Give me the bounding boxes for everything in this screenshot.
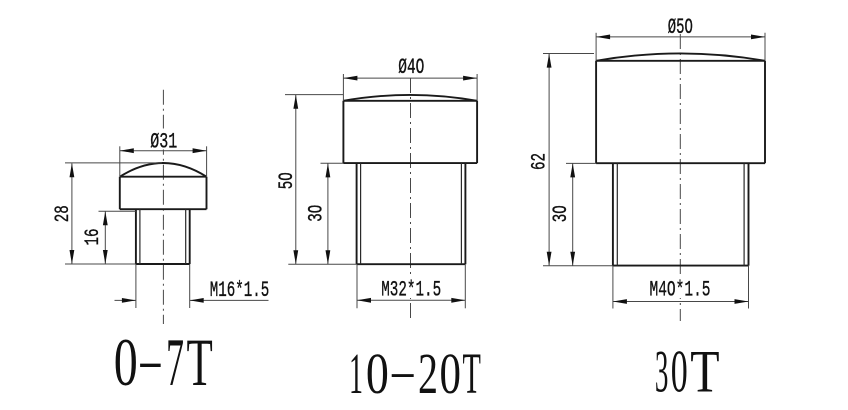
svg-text:3: 3 bbox=[655, 339, 669, 405]
svg-text:0: 0 bbox=[114, 324, 138, 400]
svg-text:5O: 5O bbox=[276, 172, 299, 189]
svg-text:Ø4O: Ø4O bbox=[398, 55, 424, 80]
svg-text:M32*1.5: M32*1.5 bbox=[381, 277, 441, 303]
svg-text:–: – bbox=[391, 337, 414, 402]
svg-text:0: 0 bbox=[366, 341, 389, 406]
svg-text:62: 62 bbox=[529, 153, 552, 170]
svg-text:Ø31: Ø31 bbox=[150, 129, 177, 154]
svg-text:T: T bbox=[463, 341, 481, 406]
svg-text:28: 28 bbox=[52, 205, 75, 222]
svg-text:1: 1 bbox=[349, 341, 363, 406]
svg-text:3O: 3O bbox=[550, 205, 573, 222]
svg-text:0: 0 bbox=[671, 339, 688, 405]
svg-text:0: 0 bbox=[440, 341, 462, 406]
svg-text:2: 2 bbox=[418, 341, 438, 406]
svg-text:T: T bbox=[690, 339, 719, 405]
svg-text:–: – bbox=[140, 320, 161, 396]
svg-text:16: 16 bbox=[82, 229, 105, 246]
svg-text:M16*1.5: M16*1.5 bbox=[210, 277, 269, 303]
svg-text:Ø5O: Ø5O bbox=[668, 15, 693, 40]
svg-text:M4O*1.5: M4O*1.5 bbox=[650, 276, 711, 302]
svg-text:T: T bbox=[187, 324, 213, 400]
svg-text:3O: 3O bbox=[305, 205, 328, 222]
svg-text:7: 7 bbox=[166, 324, 184, 400]
